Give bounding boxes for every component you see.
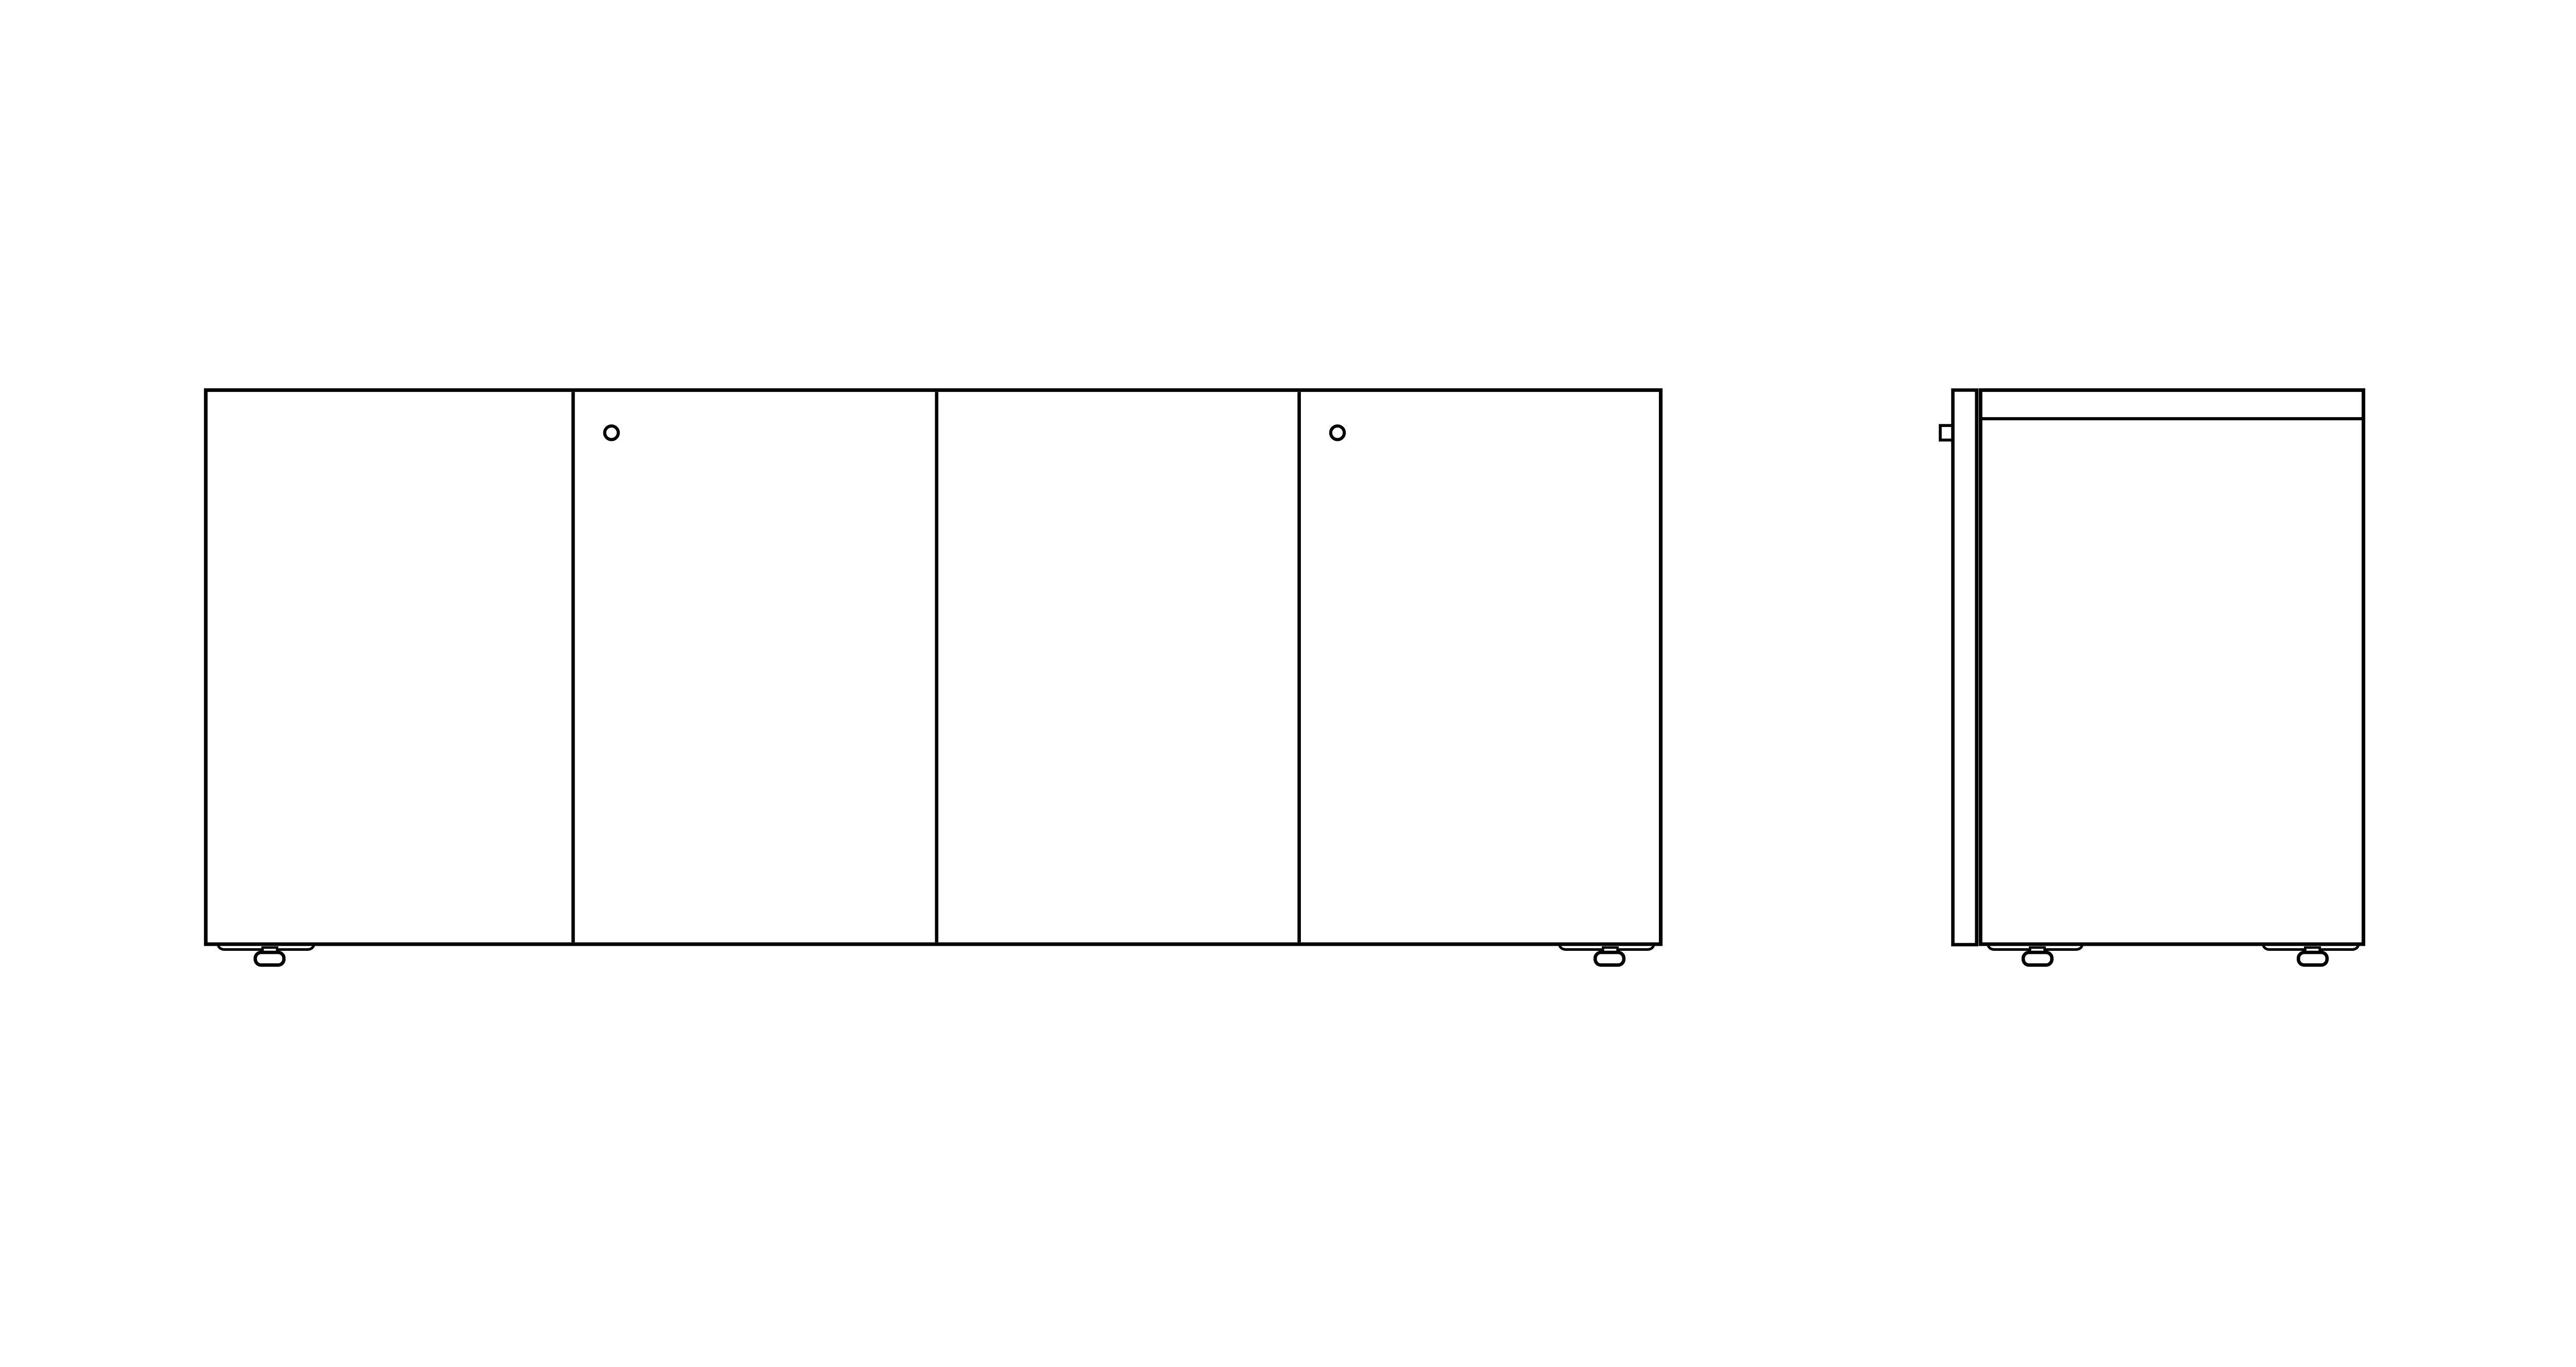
left-foot-pad xyxy=(2023,952,2052,965)
right-foot-pad xyxy=(1595,952,1624,965)
left-foot-pad xyxy=(255,952,284,965)
front-elevation-view xyxy=(206,390,1660,965)
door-panel-side-outline xyxy=(1953,390,1977,945)
right-foot-pad xyxy=(2298,952,2327,965)
cabinet-technical-drawing xyxy=(0,0,2576,1288)
side-elevation-view xyxy=(1940,390,2363,965)
cabinet-outline xyxy=(206,390,1660,944)
door-knob-left-icon xyxy=(605,426,618,439)
cabinet-side-outline xyxy=(1980,390,2363,944)
cabinet-technical-drawing-page xyxy=(0,0,2576,1288)
door-knob-right-icon xyxy=(1331,426,1344,439)
